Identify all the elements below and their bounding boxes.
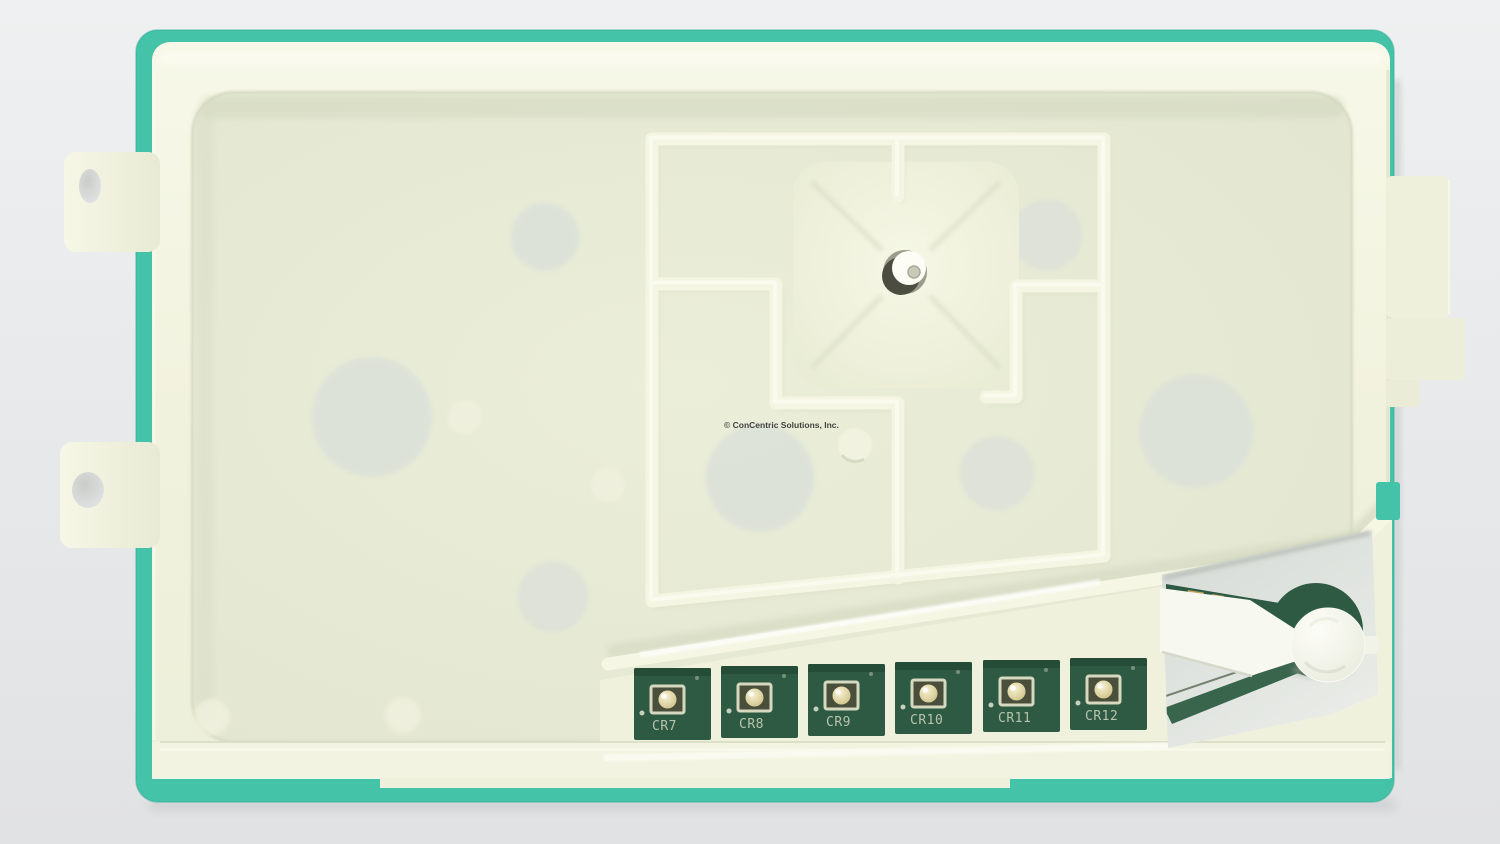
led-window-cr7: CR7	[634, 668, 711, 740]
led-package	[738, 684, 771, 711]
led-dome	[746, 689, 764, 707]
molded-circle	[706, 424, 814, 532]
rim-highlight	[160, 749, 1385, 750]
led-glint	[1010, 685, 1016, 691]
pcb-speck	[695, 676, 699, 680]
tab-hole-top	[79, 169, 101, 203]
pcb-speck	[869, 672, 873, 676]
pcb-via	[901, 705, 906, 710]
pcb-speck	[956, 670, 960, 674]
molded-circle	[1139, 374, 1253, 488]
led-glint	[922, 687, 928, 693]
led-dome	[833, 687, 851, 705]
led-dome	[1008, 683, 1026, 701]
tab-hole-bottom	[72, 472, 104, 508]
molded-circle	[1012, 200, 1082, 270]
led-dome	[920, 685, 938, 703]
pcb-window-shade	[634, 668, 711, 676]
side-tab-step3	[1386, 380, 1420, 407]
panel-top-shadow	[200, 96, 1344, 118]
pcb-via	[640, 711, 645, 716]
led-package	[651, 686, 684, 713]
product-photo: © ConCentric Solutions, Inc.	[0, 0, 1500, 844]
molded-bump	[385, 697, 421, 733]
led-package	[825, 682, 858, 709]
led-dome	[659, 691, 677, 709]
led-package	[912, 680, 945, 707]
pcb-via	[989, 703, 994, 708]
panel-left-shadow	[196, 110, 214, 720]
pcb-window-shade	[1070, 658, 1147, 666]
housing-bottom-step	[380, 778, 1010, 788]
led-window-cr8: CR8	[721, 666, 798, 738]
led-glint	[661, 693, 667, 699]
led-glint	[835, 689, 841, 695]
led-window-cr12: CR12	[1070, 658, 1147, 730]
pcb-window-shade	[808, 664, 885, 672]
molded-circle	[518, 562, 588, 632]
molded-circle	[960, 436, 1034, 510]
pcb-via	[814, 707, 819, 712]
molded-bump	[591, 468, 625, 502]
side-tab-step2	[1386, 318, 1465, 380]
pcb-via	[1076, 701, 1081, 706]
led-glint	[1097, 683, 1103, 689]
led-window-cr11: CR11	[983, 660, 1060, 732]
molded-circle	[312, 357, 432, 477]
led-package	[1087, 676, 1120, 703]
led-glint	[748, 691, 754, 697]
pcb-via	[727, 709, 732, 714]
photo-canvas: © ConCentric Solutions, Inc.	[0, 0, 1500, 844]
pcb-speck	[1044, 668, 1048, 672]
pcb-speck	[1131, 666, 1135, 670]
pcb-window-shade	[895, 662, 972, 670]
pcb-speck	[782, 674, 786, 678]
shaft-button-hole	[908, 266, 920, 278]
mounting-tab-top	[64, 152, 160, 252]
molded-circle	[511, 203, 579, 271]
pcb-window-shade	[721, 666, 798, 674]
pcb-window-shade	[983, 660, 1060, 668]
led-window-cr10: CR10	[895, 662, 972, 734]
cover-top-highlight	[160, 52, 1382, 64]
side-tab-step1	[1386, 176, 1450, 318]
board-edge-notch	[1376, 482, 1400, 520]
molded-bump	[194, 699, 230, 735]
molded-bump	[448, 400, 482, 434]
led-package	[1000, 678, 1033, 705]
led-window-cr9: CR9	[808, 664, 885, 736]
led-dome	[1095, 681, 1113, 699]
